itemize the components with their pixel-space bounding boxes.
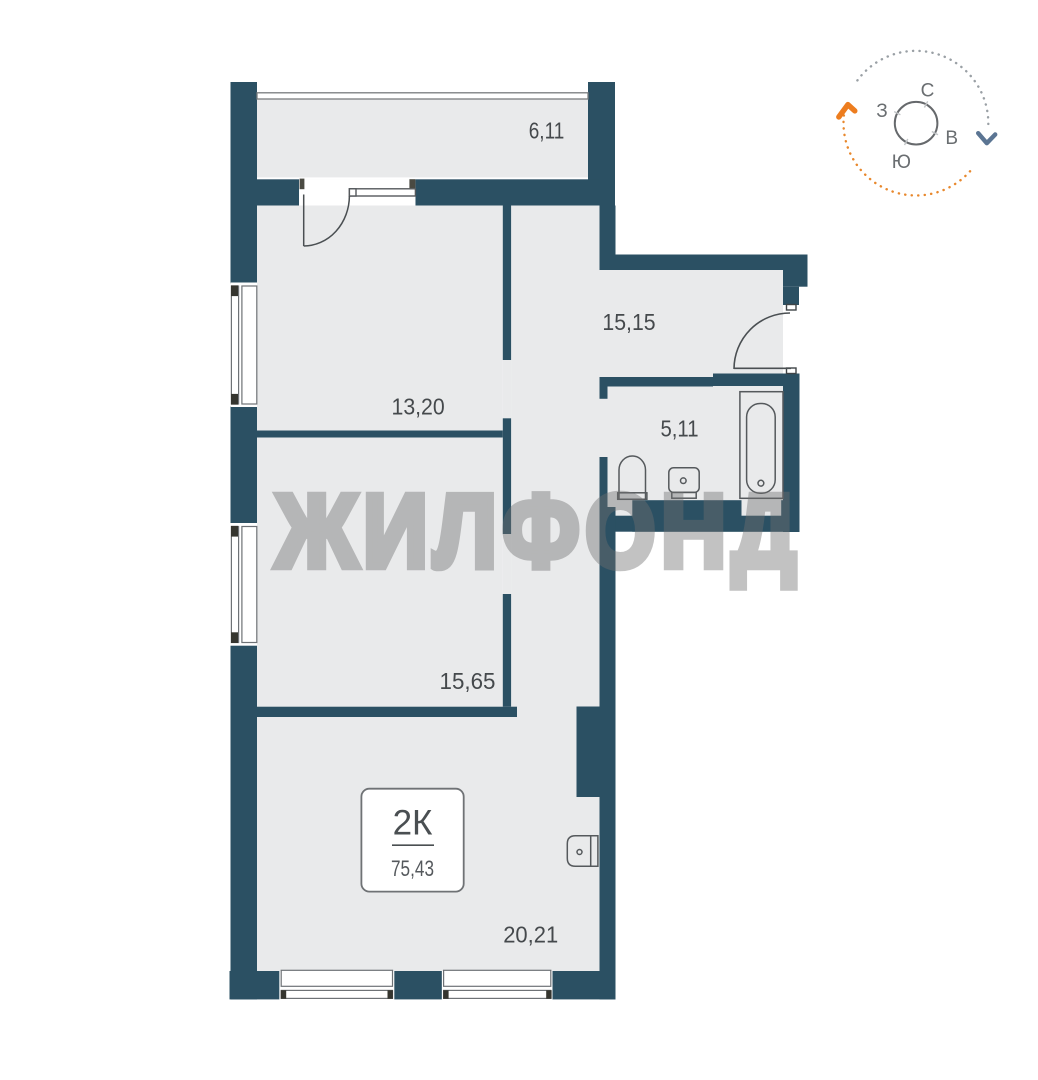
svg-text:5,11: 5,11: [660, 415, 698, 441]
svg-text:15,15: 15,15: [602, 309, 655, 335]
svg-text:20,21: 20,21: [503, 921, 558, 947]
svg-text:ЖИЛФОНД: ЖИЛФОНД: [275, 472, 802, 588]
svg-text:6,11: 6,11: [529, 117, 565, 143]
svg-text:Ю: Ю: [892, 152, 911, 173]
svg-text:2К: 2К: [393, 803, 433, 842]
svg-text:15,65: 15,65: [440, 668, 496, 694]
svg-text:75,43: 75,43: [391, 856, 434, 881]
svg-text:З: З: [876, 101, 887, 122]
svg-text:С: С: [921, 81, 935, 102]
svg-text:В: В: [945, 128, 958, 149]
svg-text:13,20: 13,20: [392, 393, 445, 419]
